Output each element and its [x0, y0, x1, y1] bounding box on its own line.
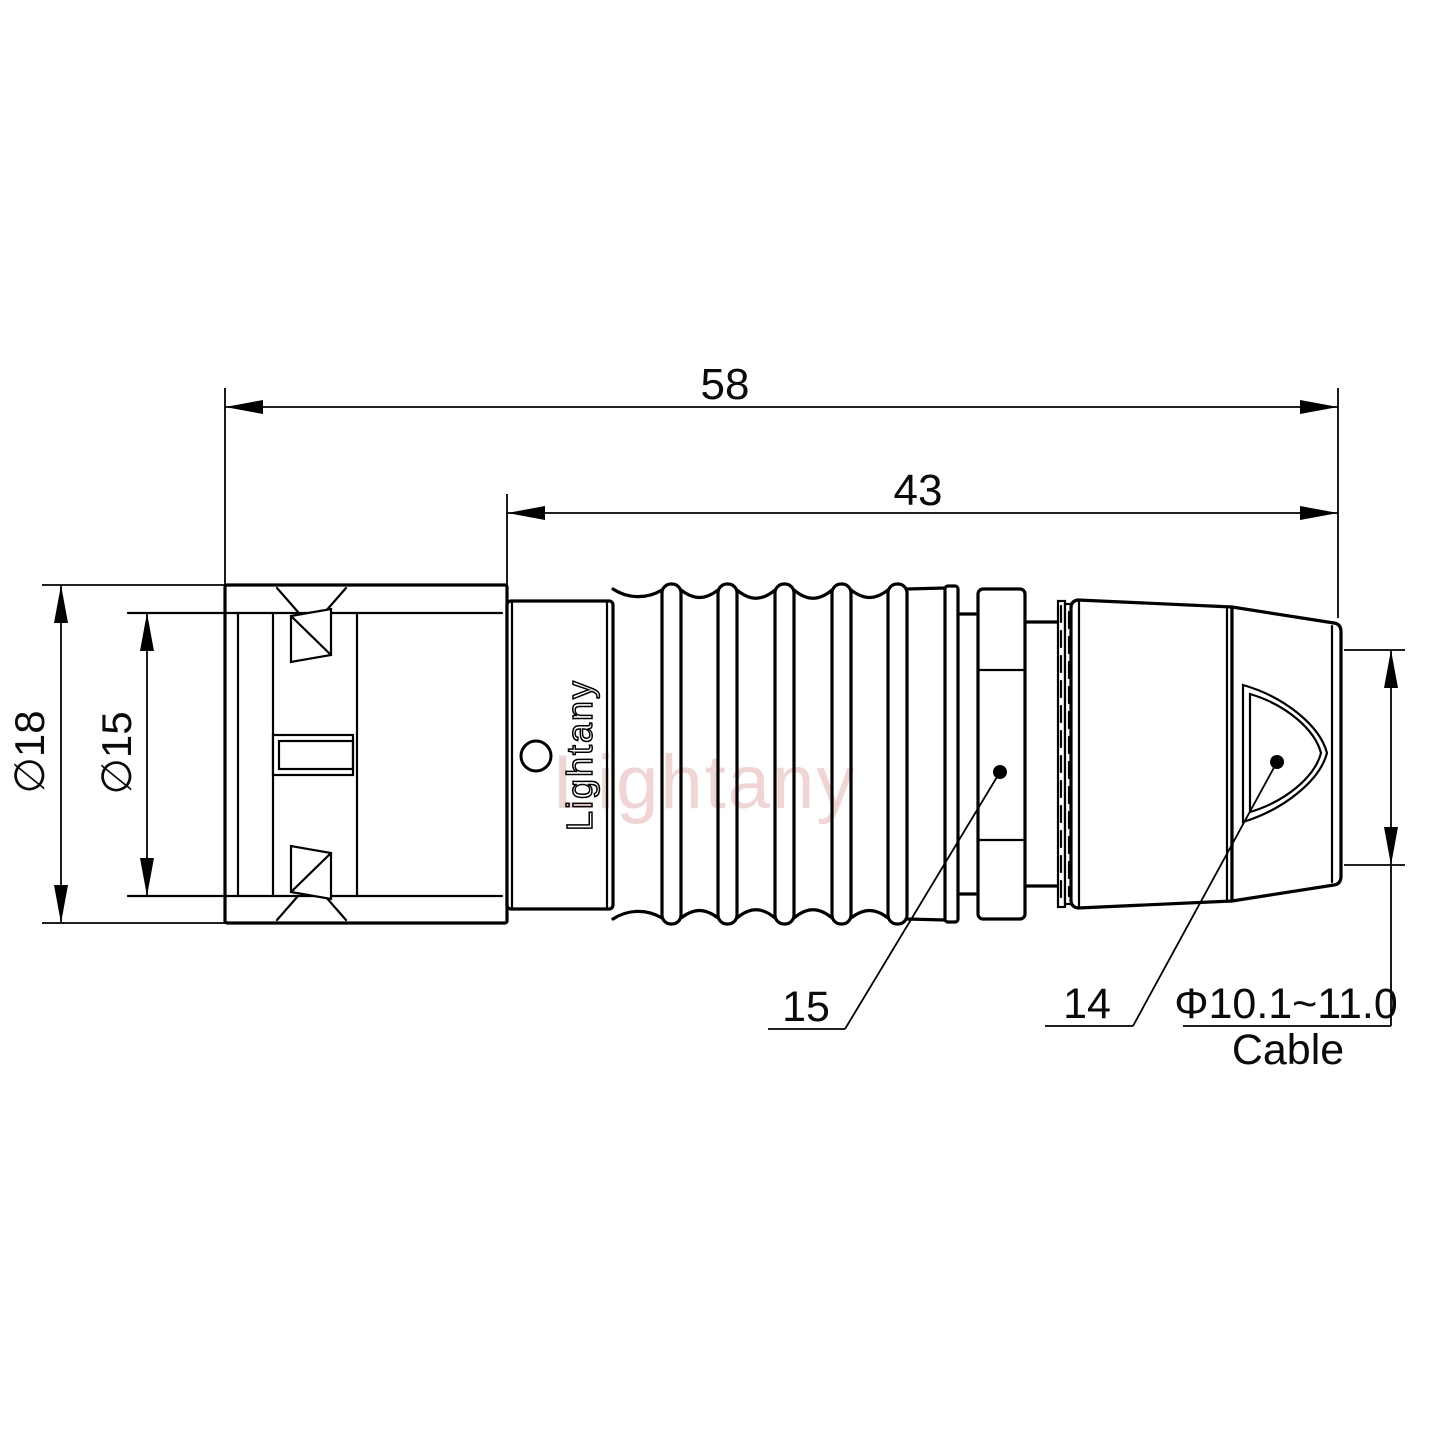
connector-backshell: [1071, 600, 1341, 908]
dia-18-label: ∅18: [6, 710, 53, 793]
cable-dia-label: Φ10.1~11.0: [1174, 980, 1398, 1028]
cable-word-label: Cable: [1232, 1026, 1344, 1074]
watermark: Lightany: [553, 740, 856, 825]
part-14-label: 14: [1063, 980, 1111, 1028]
keyway-window: [273, 735, 353, 775]
coupling-nut: [978, 589, 1025, 919]
dimension-body-length: 43: [507, 466, 1338, 600]
dim-43-label: 43: [894, 466, 943, 515]
technical-drawing-page: Lightany: [0, 0, 1440, 1440]
dimension-overall-length: 58: [225, 360, 1338, 618]
neck-front: [958, 614, 978, 894]
dimension-inner-diameter: ∅15: [93, 613, 154, 896]
connector-technical-drawing: Lightany: [0, 0, 1440, 1440]
dia-15-label: ∅15: [93, 711, 140, 794]
dim-58-label: 58: [701, 360, 750, 409]
release-hole: [521, 741, 551, 771]
part-15-label: 15: [782, 983, 830, 1031]
neck-rear: [1025, 622, 1059, 886]
connector-front-barrel: [128, 585, 507, 923]
